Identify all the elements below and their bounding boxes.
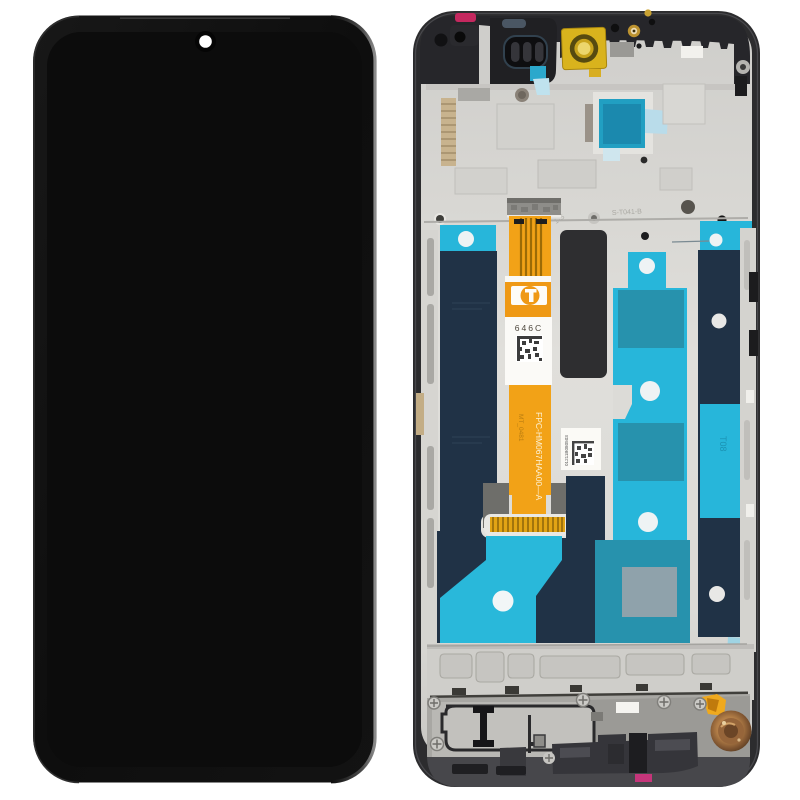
svg-text:T08: T08 — [718, 436, 728, 452]
svg-text:FPC-HM067HAA00—A: FPC-HM067HAA00—A — [534, 412, 544, 501]
svg-text:01211B080503: 01211B080503 — [564, 435, 569, 466]
svg-text:MT_0481: MT_0481 — [517, 414, 524, 442]
svg-text:646C: 646C — [515, 323, 544, 333]
